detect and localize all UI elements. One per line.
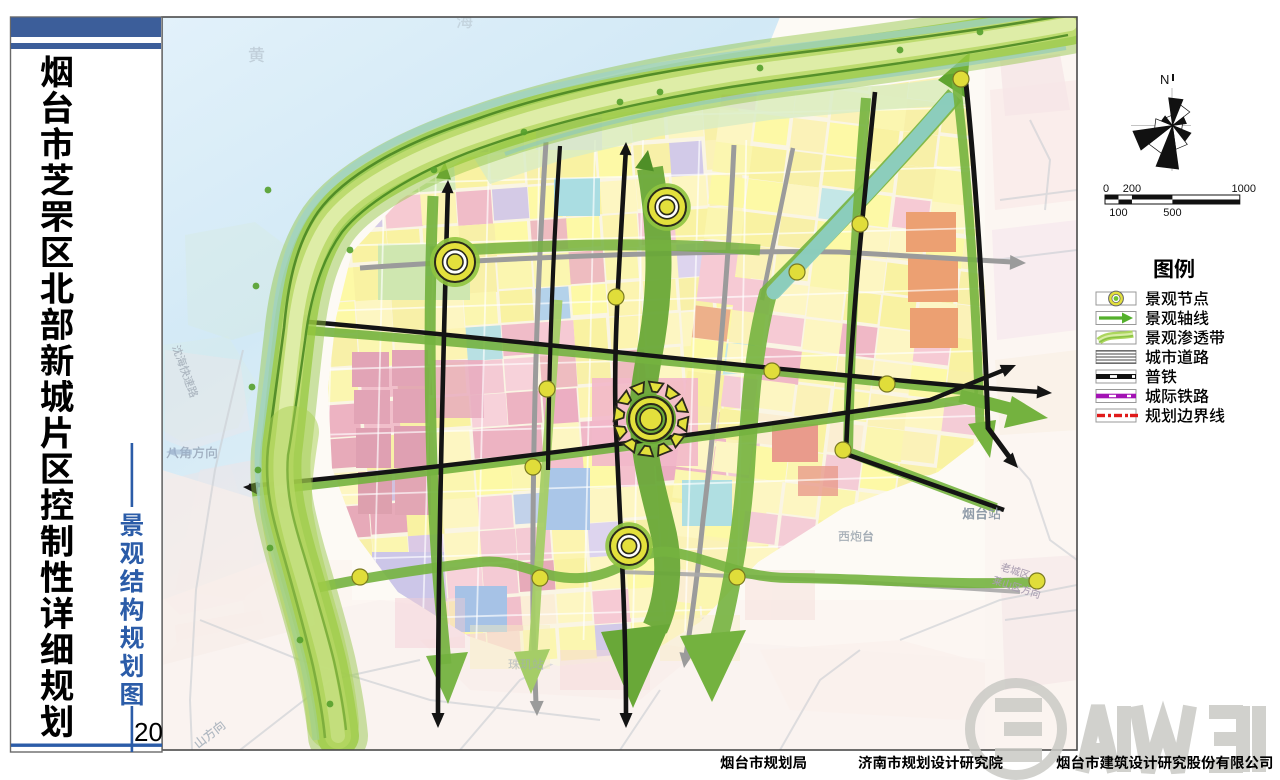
svg-text:500: 500 (1163, 207, 1181, 219)
svg-text:20: 20 (134, 717, 163, 747)
svg-text:100: 100 (1109, 207, 1127, 219)
svg-text:1000: 1000 (1232, 183, 1256, 195)
svg-text:0: 0 (1103, 183, 1109, 195)
svg-text:200: 200 (1123, 183, 1141, 195)
svg-text:N: N (1160, 72, 1169, 87)
